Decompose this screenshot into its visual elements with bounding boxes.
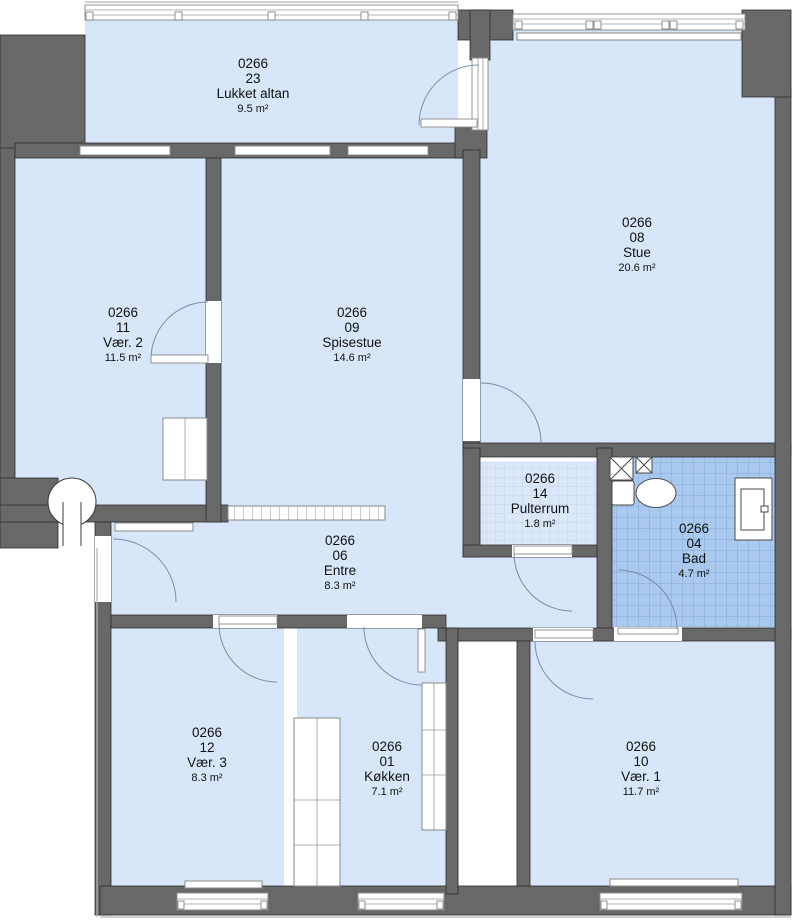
light-shaft [458,641,517,894]
room-id: 0266 [626,739,656,754]
room-number: 06 [332,548,347,563]
room-id: 0266 [679,521,709,536]
sink-vanity-icon [735,478,772,540]
room-name: Bad [682,551,706,566]
wall [463,448,480,557]
floor-plan: 0266 23 Lukket altan 9.5 m² 0266 11 Vær.… [0,0,800,921]
room-number: 23 [245,71,260,86]
room-name: Entre [324,563,356,578]
room-number: 09 [344,320,359,335]
room-area: 9.5 m² [237,103,269,115]
room-label-vaer-2: 0266 11 Vær. 2 11.5 m² [103,305,143,364]
window-stue-top [513,14,745,30]
room-area: 1.8 m² [524,518,556,530]
wall [0,148,15,522]
room-area: 11.7 m² [623,786,660,798]
door-threshold-bad [618,628,678,634]
room-area: 4.7 m² [678,568,710,580]
window-vaer3-bottom [177,893,268,910]
wardrobe-hatch-entre [228,506,385,520]
toilet-icon [612,479,676,508]
room-id: 0266 [108,305,138,320]
door-leaf-vaer3 [219,616,277,624]
floor-plan-canvas: 0266 23 Lukket altan 9.5 m² 0266 11 Vær.… [0,0,800,921]
kitchen-counter-left [294,718,340,886]
window-inner-1 [80,146,170,155]
room-number: 11 [116,320,130,335]
wall [0,35,85,155]
radiator-entre [115,523,193,531]
room-area: 11.5 m² [105,352,142,364]
room-id: 0266 [337,305,367,320]
room-label-vaer-3: 0266 12 Vær. 3 8.3 m² [187,725,227,784]
door-leaf-koekken [418,629,425,672]
room-name: Køkken [364,769,410,784]
window-inner-3 [348,146,428,155]
window-vaer1-bottom [600,893,742,910]
room-area: 8.3 m² [191,772,223,784]
room-id: 0266 [622,215,652,230]
room-number: 08 [629,230,644,245]
room-area: 8.3 m² [324,580,356,592]
room-name: Vær. 1 [621,769,661,784]
floor-lukket-altan [85,20,458,148]
wall [517,641,530,886]
room-label-vaer-1: 0266 10 Vær. 1 11.7 m² [621,739,661,798]
room-number: 01 [379,754,394,769]
wardrobe-vaer2 [163,418,207,480]
room-name: Spisestue [322,335,381,350]
room-name: Stue [623,245,651,260]
floor-stue [480,30,775,443]
door-leaf-pulterrum [514,546,572,554]
wall [463,443,791,457]
room-id: 0266 [238,56,268,71]
kitchen-counter-right [422,683,446,830]
room-name: Pulterrum [511,501,570,516]
door-leaf-vaer1 [535,630,593,638]
room-name: Lukket altan [217,86,290,101]
floor-spisestue [221,148,463,515]
room-number: 04 [686,536,702,551]
room-id: 0266 [192,725,222,740]
room-label-stue: 0266 08 Stue 20.6 m² [618,215,656,274]
room-label-bad: 0266 04 Bad 4.7 m² [678,521,710,580]
room-area: 20.6 m² [618,262,656,274]
window-inner-2 [235,146,330,155]
room-number: 10 [633,754,648,769]
room-label-entre: 0266 06 Entre 8.3 m² [324,533,356,592]
door-opening-vaer2 [206,301,221,363]
room-number: 12 [199,740,214,755]
wall [0,505,228,522]
room-number: 14 [532,486,548,501]
room-id: 0266 [525,471,555,486]
radiator-vaer1 [610,879,738,886]
wall [742,10,791,97]
room-id: 0266 [372,739,402,754]
wall [446,628,458,894]
door-leaf-vaer2 [151,355,208,363]
room-name: Vær. 2 [103,335,143,350]
door-opening-stue [463,379,480,441]
room-area: 7.1 m² [371,786,403,798]
radiator-vaer3 [185,881,262,888]
room-name: Vær. 3 [187,755,227,770]
floor-vaer-1 [530,641,775,886]
room-area: 14.6 m² [333,352,371,364]
wall [470,10,490,60]
room-id: 0266 [325,533,355,548]
wall [775,90,791,915]
radiator-stue [517,33,741,40]
window-koekken-bottom [358,893,444,910]
door-opening-koekken [347,615,422,628]
door-leaf-altan [421,119,477,127]
floor-entre-bend [440,615,530,628]
